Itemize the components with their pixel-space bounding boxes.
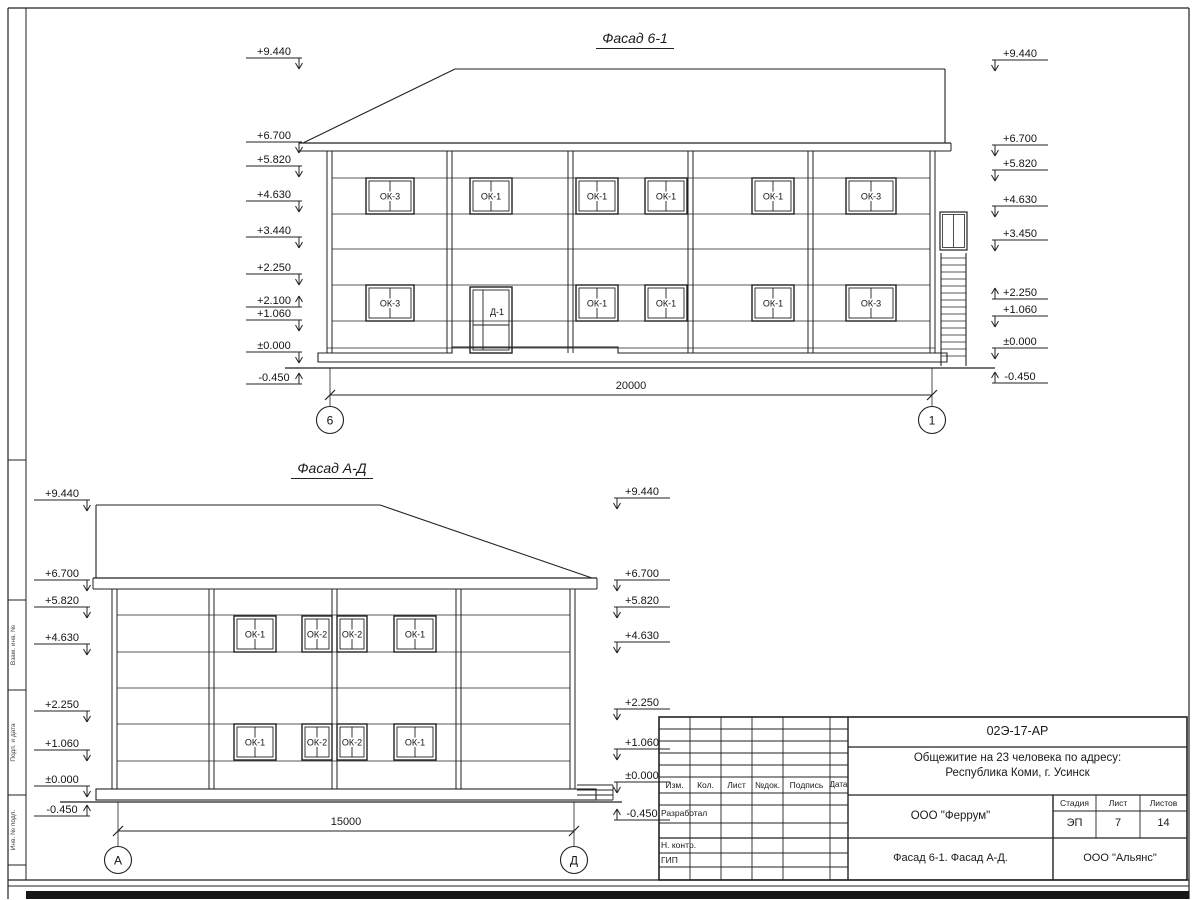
role-gip: ГИП — [661, 855, 678, 865]
elevation-value: ±0.000 — [45, 774, 79, 786]
drawing-sheet: ОК-3ОК-1ОК-1ОК-1ОК-1ОК-3ОК-3ОК-1ОК-1ОК-1… — [0, 0, 1200, 900]
sheets-value: 14 — [1140, 817, 1187, 830]
facade2-title-text: Фасад А-Д — [291, 460, 372, 479]
col-podpis: Подпись — [783, 780, 830, 790]
facade2-title: Фасад А-Д — [232, 460, 432, 479]
elevation-value: +5.820 — [1003, 158, 1037, 170]
axis-label: А — [114, 854, 122, 868]
line — [87, 755, 91, 761]
axis-label: 1 — [929, 414, 936, 428]
elevation-value: +5.820 — [625, 595, 659, 607]
elevation-value: ±0.000 — [257, 340, 291, 352]
elevation-value: +9.440 — [257, 46, 291, 58]
facade1-title: Фасад 6-1 — [535, 30, 735, 49]
door — [470, 287, 512, 353]
line — [296, 296, 300, 302]
axis-label: Д — [570, 854, 578, 868]
line — [380, 505, 592, 578]
elevation-value: -0.450 — [46, 804, 77, 816]
line — [299, 147, 303, 153]
contractor-name: ООО "Феррум" — [848, 810, 1053, 824]
line — [617, 809, 621, 815]
elevation-value: +6.700 — [257, 130, 291, 142]
window-label: ОК-1 — [763, 192, 783, 202]
window-label: ОК-1 — [405, 738, 425, 748]
line — [296, 242, 300, 248]
elevation-value: ±0.000 — [1003, 336, 1037, 348]
project-name-line2: Республика Коми, г. Усинск — [848, 767, 1187, 781]
line — [992, 372, 996, 378]
line — [614, 503, 618, 509]
line — [87, 791, 91, 797]
facade-6-1: ОК-3ОК-1ОК-1ОК-1ОК-1ОК-3ОК-3ОК-1ОК-1ОК-1… — [246, 46, 1048, 434]
col-kol: Кол. — [690, 780, 721, 790]
elevation-value: -0.450 — [258, 372, 289, 384]
line — [87, 716, 91, 722]
line — [992, 175, 996, 181]
line — [992, 353, 996, 359]
elevation-value: +4.630 — [257, 189, 291, 201]
sheets-label: Листов — [1140, 798, 1187, 808]
design-org: ООО "Альянс" — [1053, 852, 1187, 865]
window-label: ОК-1 — [481, 192, 501, 202]
elevation-value: +4.630 — [625, 630, 659, 642]
elevation-value: +2.250 — [45, 699, 79, 711]
elevation-value: +9.440 — [45, 488, 79, 500]
line — [614, 647, 618, 653]
line — [299, 206, 303, 212]
line — [296, 279, 300, 285]
window-label: ОК-2 — [342, 630, 362, 640]
line — [995, 353, 999, 359]
line — [84, 505, 88, 511]
elevation-value: +6.700 — [1003, 133, 1037, 145]
line — [299, 373, 303, 379]
line — [84, 755, 88, 761]
line — [296, 206, 300, 212]
line — [87, 612, 91, 618]
elevation-value: +3.440 — [257, 225, 291, 237]
window-label: ОК-3 — [861, 192, 881, 202]
line — [995, 150, 999, 156]
line — [617, 754, 621, 760]
elevation-value: +3.450 — [1003, 228, 1037, 240]
elevation-value: +1.060 — [45, 738, 79, 750]
line — [617, 787, 621, 793]
line — [992, 245, 996, 251]
role-razrabotal: Разработал — [661, 808, 707, 818]
sheet-label: Лист — [1096, 798, 1140, 808]
line — [995, 211, 999, 217]
line — [299, 279, 303, 285]
window-label: ОК-1 — [656, 299, 676, 309]
col-list: Лист — [721, 780, 752, 790]
line — [992, 321, 996, 327]
line — [87, 805, 91, 811]
drawing-title: Фасад 6-1. Фасад А-Д. — [848, 852, 1053, 865]
elevation-value: +2.100 — [257, 295, 291, 307]
line — [296, 63, 300, 69]
line — [299, 242, 303, 248]
base-slab — [96, 789, 596, 800]
window-label: ОК-2 — [342, 738, 362, 748]
elevation-value: +5.820 — [45, 595, 79, 607]
elevation-value: +2.250 — [1003, 287, 1037, 299]
line — [87, 505, 91, 511]
window-label: ОК-1 — [587, 299, 607, 309]
door-inner — [473, 290, 509, 350]
elevation-value: +2.250 — [625, 697, 659, 709]
window-label: ОК-1 — [245, 738, 265, 748]
elevation-value: +9.440 — [1003, 48, 1037, 60]
stage-value: ЭП — [1053, 817, 1096, 830]
line — [296, 373, 300, 379]
line — [617, 612, 621, 618]
facade1-title-text: Фасад 6-1 — [596, 30, 674, 49]
line — [614, 585, 618, 591]
line — [296, 171, 300, 177]
project-name-line1: Общежитие на 23 человека по адресу: — [848, 752, 1187, 766]
door-label: Д-1 — [490, 307, 504, 317]
side-stamp-inv: Инв. № подл. — [10, 795, 17, 865]
line — [614, 714, 618, 720]
col-izm: Изм. — [659, 780, 690, 790]
window-label: ОК-3 — [380, 299, 400, 309]
elevation-value: -0.450 — [1004, 371, 1035, 383]
line — [617, 647, 621, 653]
doc-code: 02Э-17-АР — [848, 724, 1187, 739]
elevation-value: +1.060 — [625, 737, 659, 749]
base-slab — [318, 347, 947, 362]
line — [87, 649, 91, 655]
line — [617, 714, 621, 720]
window-label: ОК-1 — [763, 299, 783, 309]
facade1-dimension: 20000 — [571, 380, 691, 393]
line — [84, 716, 88, 722]
role-nkontr: Н. контр. — [661, 840, 696, 850]
line — [303, 69, 455, 143]
side-stamp-podp: Подп. и дата — [10, 690, 17, 795]
elevation-value: +4.630 — [1003, 194, 1037, 206]
line — [992, 211, 996, 217]
window-label: ОК-1 — [245, 630, 265, 640]
line — [995, 372, 999, 378]
line — [296, 147, 300, 153]
elevation-value: ±0.000 — [625, 770, 659, 782]
line — [84, 585, 88, 591]
line — [296, 325, 300, 331]
col-data: Дата — [829, 780, 848, 790]
window-label: ОК-2 — [307, 738, 327, 748]
line — [614, 754, 618, 760]
line — [299, 325, 303, 331]
line — [299, 63, 303, 69]
line — [617, 503, 621, 509]
elevation-value: +1.060 — [257, 308, 291, 320]
line — [995, 175, 999, 181]
elevation-value: +2.250 — [257, 262, 291, 274]
line — [614, 787, 618, 793]
line — [84, 805, 88, 811]
line — [84, 649, 88, 655]
line — [617, 585, 621, 591]
side-stamp-vzam: Взам. инв. № — [10, 600, 17, 690]
sheet-value: 7 — [1096, 817, 1140, 830]
line — [84, 791, 88, 797]
window-label: ОК-3 — [380, 192, 400, 202]
line — [299, 296, 303, 302]
line — [992, 288, 996, 294]
line — [299, 171, 303, 177]
elevation-value: +1.060 — [1003, 304, 1037, 316]
line — [614, 612, 618, 618]
line — [299, 357, 303, 363]
line — [995, 65, 999, 71]
line — [995, 288, 999, 294]
stage-label: Стадия — [1053, 798, 1096, 808]
sheet-bottom-edge — [26, 891, 1189, 899]
line — [992, 150, 996, 156]
elevation-value: +6.700 — [625, 568, 659, 580]
window-label: ОК-1 — [587, 192, 607, 202]
elevation-value: -0.450 — [626, 808, 657, 820]
window-label: ОК-1 — [656, 192, 676, 202]
line — [995, 321, 999, 327]
elevation-value: +5.820 — [257, 154, 291, 166]
elevation-value: +4.630 — [45, 632, 79, 644]
facade2-dimension: 15000 — [286, 816, 406, 829]
col-ndok: №док. — [752, 780, 783, 790]
line — [84, 612, 88, 618]
line — [614, 809, 618, 815]
line — [87, 585, 91, 591]
axis-label: 6 — [327, 414, 334, 428]
elevation-value: +9.440 — [625, 486, 659, 498]
line — [296, 357, 300, 363]
window-label: ОК-3 — [861, 299, 881, 309]
elevation-value: +6.700 — [45, 568, 79, 580]
line — [992, 65, 996, 71]
window-label: ОК-1 — [405, 630, 425, 640]
line — [995, 245, 999, 251]
window-label: ОК-2 — [307, 630, 327, 640]
